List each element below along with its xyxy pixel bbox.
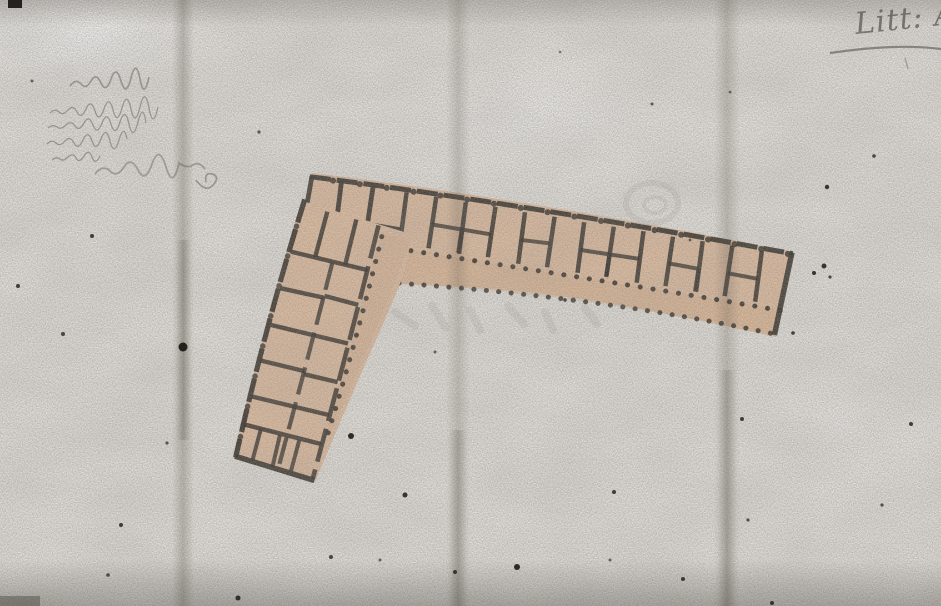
fold-line-left-dark-segment	[176, 240, 191, 440]
scanned-floor-plan-document: Litt: A	[0, 0, 941, 606]
scan-image: Litt: A	[0, 0, 941, 606]
bottom-edge-shadow	[0, 560, 941, 606]
top-left-edge-mark	[8, 0, 22, 8]
paper-grain-texture	[0, 0, 941, 606]
bottom-left-corner-smudge	[0, 596, 40, 606]
top-edge-shadow	[0, 0, 941, 26]
